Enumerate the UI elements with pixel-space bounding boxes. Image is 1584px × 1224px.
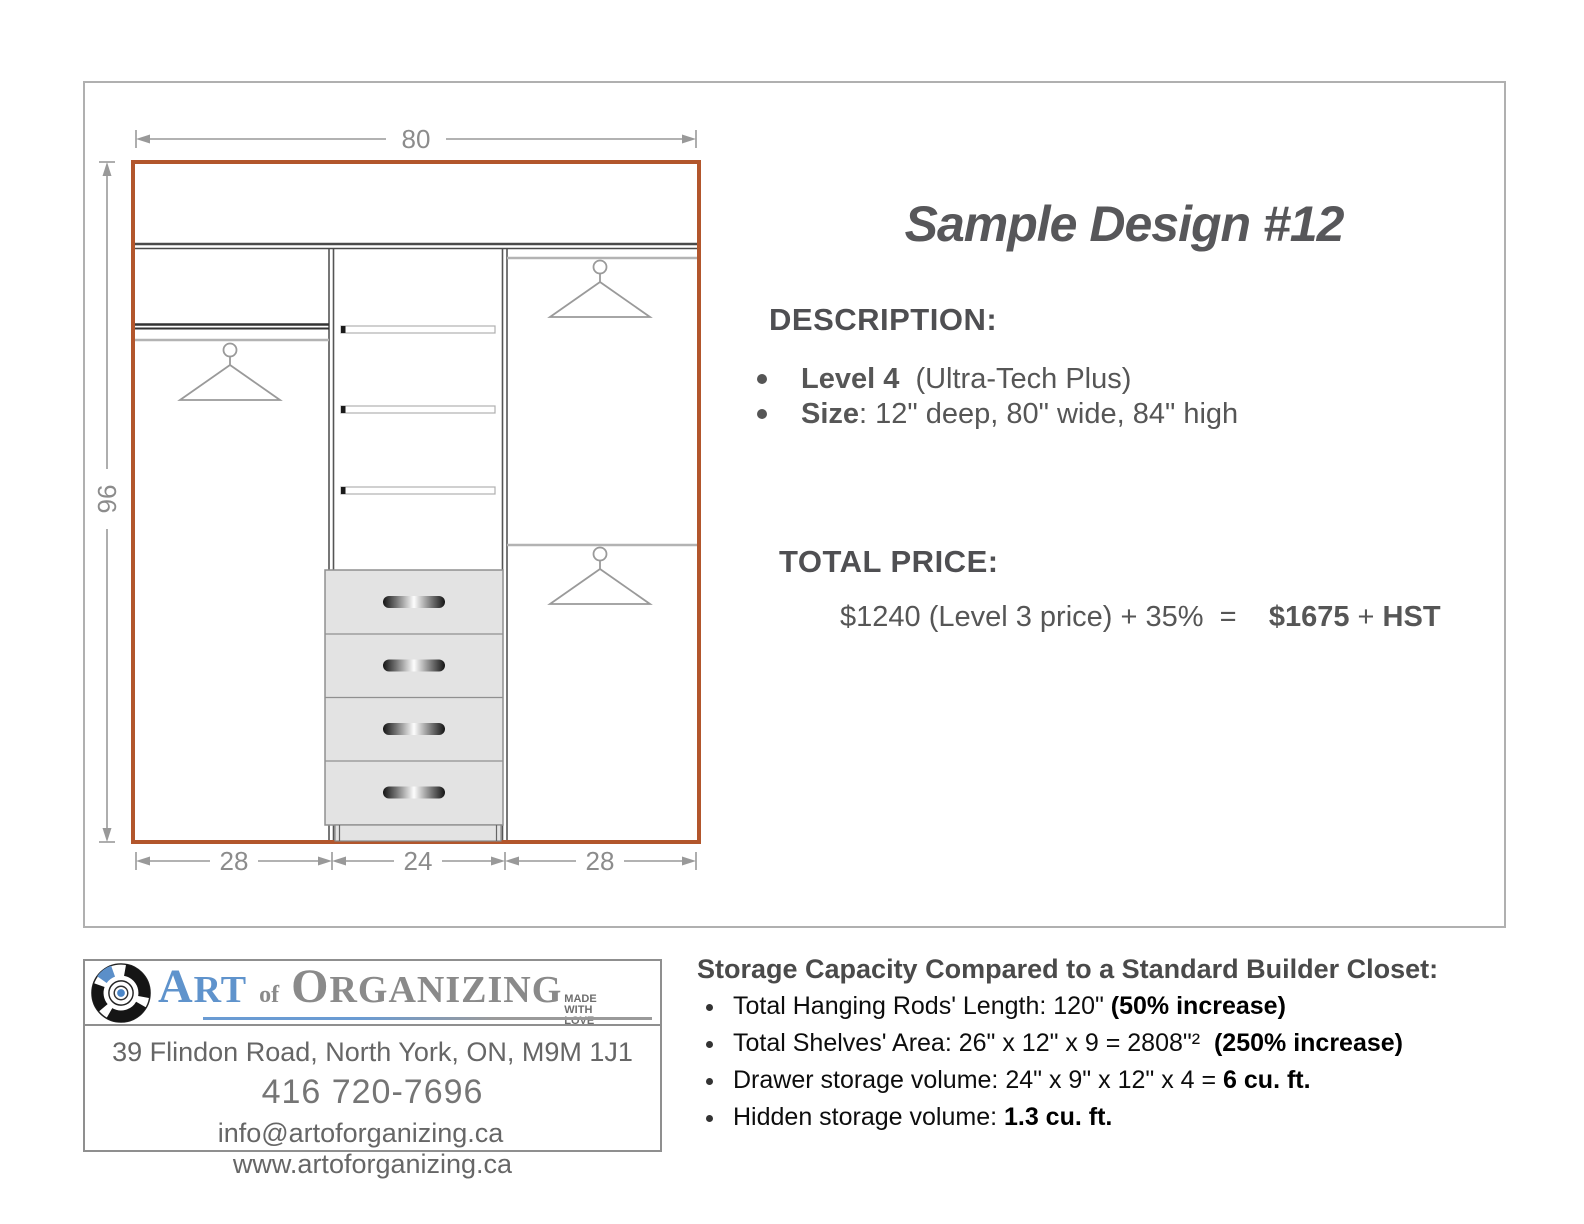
bullet-icon bbox=[757, 409, 767, 419]
bullet-icon bbox=[706, 1004, 713, 1011]
logo-tagline: MADE WITH LOVE bbox=[564, 994, 596, 1027]
hanger-icon bbox=[180, 344, 280, 401]
bullet-icon bbox=[757, 374, 767, 384]
bullet-icon bbox=[706, 1115, 713, 1122]
company-address-box: 39 Flindon Road, North York, ON, M9M 1J1… bbox=[83, 1026, 662, 1152]
width-dimension-label: 80 bbox=[402, 124, 431, 154]
price-separator: + bbox=[1349, 601, 1382, 633]
price-line: $1240 (Level 3 price) + 35% = $1675 + HS… bbox=[840, 601, 1441, 634]
logo-text-organizing: ORGANIZING bbox=[291, 959, 562, 1014]
design-sheet-box: 80 96 bbox=[83, 81, 1506, 928]
storage-item: Total Shelves' Area: 26" x 12" x 9 = 280… bbox=[706, 1029, 1403, 1066]
description-list: Level 4 (Ultra-Tech Plus) Size : 12" dee… bbox=[757, 363, 1238, 433]
storage-item: Total Hanging Rods' Length: 120" (50% in… bbox=[706, 992, 1403, 1029]
storage-list: Total Hanging Rods' Length: 120" (50% in… bbox=[706, 992, 1403, 1140]
storage-heading: Storage Capacity Compared to a Standard … bbox=[697, 954, 1438, 985]
drawer-handle-icon bbox=[383, 596, 445, 608]
shelf-bar bbox=[341, 326, 495, 333]
hanger-icon bbox=[550, 261, 650, 318]
website-url: www.artoforganizing.ca bbox=[233, 1149, 512, 1179]
storage-item: Drawer storage volume: 24" x 9" x 12" x … bbox=[706, 1066, 1403, 1103]
phone-number: 416 720-7696 bbox=[85, 1073, 660, 1112]
price-heading: TOTAL PRICE: bbox=[779, 544, 999, 580]
company-logo-box: ART of ORGANIZING MADE WITH LOVE bbox=[83, 959, 662, 1026]
price-formula: $1240 (Level 3 price) + 35% = bbox=[840, 601, 1269, 633]
item-text: (Ultra-Tech Plus) bbox=[899, 363, 1131, 396]
item-text: : 12" deep, 80" wide, 84" high bbox=[859, 398, 1238, 431]
top-shelf-line bbox=[135, 244, 697, 249]
logo-text-of: of bbox=[259, 982, 279, 1009]
height-dimension-label: 96 bbox=[92, 485, 122, 514]
company-logo-icon bbox=[90, 962, 152, 1024]
page: 80 96 bbox=[0, 0, 1584, 1224]
price-tax: HST bbox=[1383, 601, 1441, 633]
drawer-handle-icon bbox=[383, 723, 445, 735]
closet-diagram: 80 96 bbox=[92, 117, 722, 887]
design-title: Sample Design #12 bbox=[824, 195, 1424, 253]
left-shelf-line bbox=[135, 325, 329, 329]
item-label: Size bbox=[801, 398, 859, 431]
section-dimension-label: 28 bbox=[586, 846, 615, 876]
logo-text-art: ART bbox=[158, 959, 247, 1014]
address-line: 39 Flindon Road, North York, ON, M9M 1J1 bbox=[85, 1037, 660, 1068]
drawer-stack bbox=[325, 570, 503, 825]
bullet-icon bbox=[706, 1041, 713, 1048]
item-label: Level 4 bbox=[801, 363, 899, 396]
description-item: Size : 12" deep, 80" wide, 84" high bbox=[757, 398, 1238, 433]
bullet-icon bbox=[706, 1078, 713, 1085]
drawer-handle-icon bbox=[383, 787, 445, 799]
section-dimension-label: 28 bbox=[220, 846, 249, 876]
section-dimension-label: 24 bbox=[404, 846, 433, 876]
toe-kick bbox=[335, 825, 501, 841]
description-heading: DESCRIPTION: bbox=[769, 302, 997, 338]
hanger-icon bbox=[550, 548, 650, 605]
description-item: Level 4 (Ultra-Tech Plus) bbox=[757, 363, 1238, 398]
logo-underline bbox=[203, 1017, 652, 1020]
price-amount: $1675 bbox=[1269, 601, 1350, 633]
shelf-bar bbox=[341, 406, 495, 413]
drawer-handle-icon bbox=[383, 660, 445, 672]
shelf-bar bbox=[341, 487, 495, 494]
contact-line: info@artoforganizing.cawww.artoforganizi… bbox=[85, 1118, 660, 1180]
email-address: info@artoforganizing.ca bbox=[218, 1118, 504, 1148]
storage-item: Hidden storage volume: 1.3 cu. ft. bbox=[706, 1103, 1403, 1140]
